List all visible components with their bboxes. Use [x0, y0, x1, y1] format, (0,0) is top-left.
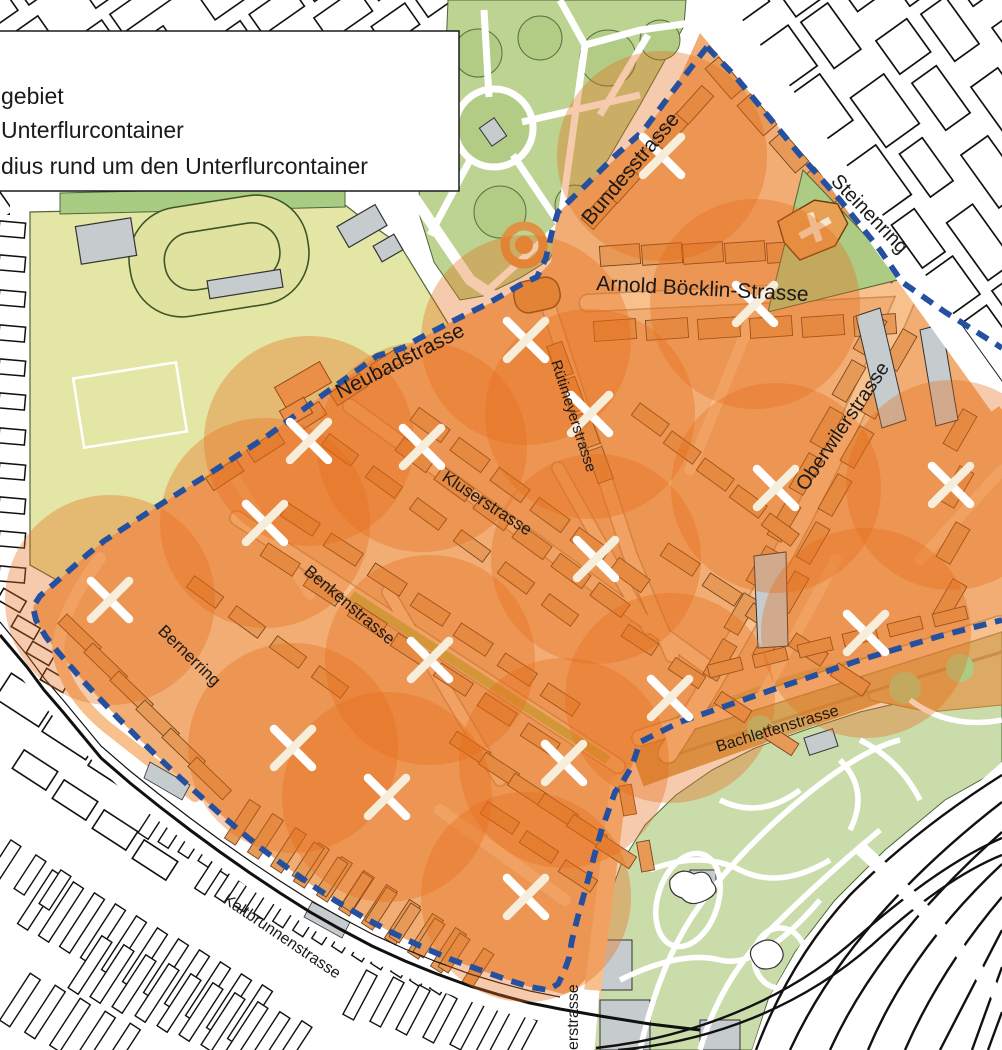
svg-text:gebiet: gebiet — [1, 83, 64, 109]
svg-text:erstrasse: erstrasse — [565, 984, 582, 1050]
svg-text:Unterflurcontainer: Unterflurcontainer — [1, 117, 184, 143]
svg-text:dius rund um den Unterflurcont: dius rund um den Unterflurcontainer — [1, 153, 368, 179]
